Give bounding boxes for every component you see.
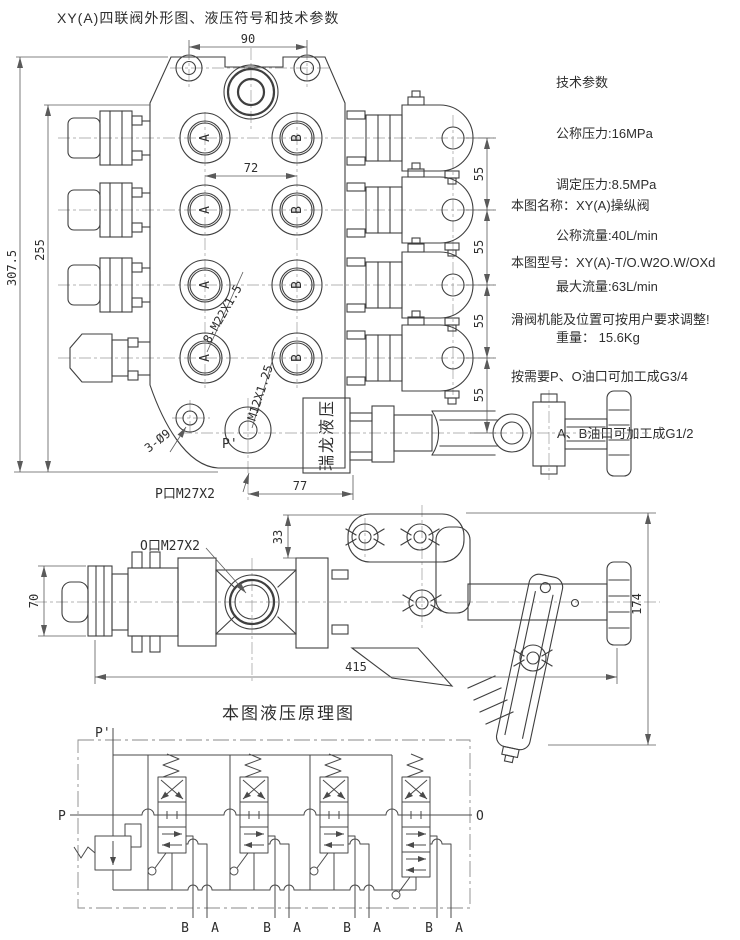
dim-55: 55 [472,314,486,328]
brand-label: 瑞龙液压 [318,399,336,471]
schematic-title: 本图液压原理图 [222,704,355,723]
directional-valve-4 [392,754,451,918]
port-b-label: B [290,281,305,289]
hand-lever [468,572,565,765]
relief-valve-symbol [74,824,141,870]
dim-55: 55 [472,240,486,254]
port-b-label: B [290,206,305,214]
dim-55: 55 [472,167,486,181]
side-view: 70 33 415 174 O口M27X2 [27,505,660,765]
label-thread-pilot: M12X1.25 [245,363,276,422]
label-b: B [425,921,433,936]
label-b: B [343,921,351,936]
label-o-port: O口M27X2 [140,539,200,554]
front-centerlines [58,48,648,502]
port-circles: A B A B A B A B [180,113,322,383]
label-b: B [263,921,271,936]
port-a-label: A [198,281,213,289]
dim-77: 77 [293,479,307,493]
section-hatch [468,676,513,724]
label-p-prime: P' [95,726,111,741]
dim-33: 33 [271,530,285,544]
port-b-label: B [290,134,305,142]
engineering-drawing-page: XY(A)四联阀外形图、液压符号和技术参数 技术参数 公称压力:16MPa 调定… [0,0,740,940]
dim-174: 174 [630,593,644,615]
dim-70: 70 [27,594,41,608]
label-a: A [293,921,301,936]
port-b-label: B [290,354,305,362]
label-a: A [373,921,381,936]
side-centerlines [35,505,660,682]
label-a: A [211,921,219,936]
dim-255: 255 [33,239,47,261]
label-p-prime: P' [222,437,238,452]
wing-bolt [401,524,439,550]
port-a-label: A [198,206,213,214]
dim-72: 72 [244,161,258,175]
front-handle-assembly [350,391,631,476]
label-o: O [476,809,484,824]
schematic-lines [70,728,472,890]
brand-box: 瑞龙液压 [303,398,350,473]
label-a: A [455,921,463,936]
port-a-label: A [198,354,213,362]
directional-valve-1 [148,754,207,918]
directional-valve-3 [310,754,369,918]
spool-end-caps [68,111,150,382]
label-p: P [58,809,66,824]
port-a-label: A [198,134,213,142]
front-view: A B A B A B A B [5,32,648,502]
dim-307-5: 307.5 [5,250,19,286]
dim-415: 415 [345,660,367,674]
drawing-canvas: A B A B A B A B [0,0,740,940]
front-dimensions: 90 72 255 307.5 55 55 55 55 77 8-M22X1.5… [5,32,496,502]
dim-90: 90 [241,32,255,46]
label-mount-holes: 3-Ø9 [142,426,173,455]
side-rod-knob [468,562,631,645]
hydraulic-schematic: 本图液压原理图 [58,704,484,936]
label-p-port: P口M27X2 [155,487,215,502]
dim-55: 55 [472,388,486,402]
label-b: B [181,921,189,936]
directional-valve-2 [230,754,289,918]
label-thread-ab: 8-M22X1.5 [200,282,245,345]
